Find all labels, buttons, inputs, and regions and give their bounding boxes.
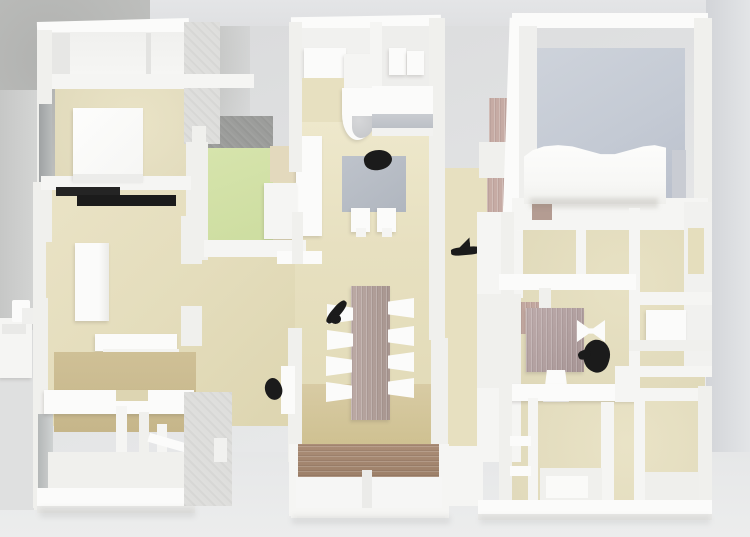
kitchen-band-gray xyxy=(372,114,433,128)
tr-top-wall xyxy=(512,13,708,28)
tl-upper-divider xyxy=(146,33,151,75)
wardrobe xyxy=(75,243,109,321)
mini-cabinet-shelf xyxy=(2,324,26,334)
grid-h-right-c xyxy=(629,366,712,377)
deck-divider xyxy=(362,470,372,512)
living-wall-stub-b xyxy=(181,306,202,346)
desk-chair-b-leg xyxy=(382,228,392,237)
grid-right-sliver xyxy=(688,228,704,274)
bl-slab-notch xyxy=(116,390,148,401)
green-top-beam xyxy=(184,74,254,88)
wavy-bed-shadow xyxy=(530,198,658,208)
grid-left-wall xyxy=(501,212,514,368)
kitchen-band xyxy=(372,86,433,114)
black-shelf-lower xyxy=(77,195,176,206)
br-shelf-a xyxy=(510,436,531,446)
dining-table xyxy=(351,286,390,420)
br-v2 xyxy=(601,402,614,508)
grid-h-right-a xyxy=(629,292,712,305)
kitchen-band-lip xyxy=(372,128,433,136)
tl-window xyxy=(39,104,52,182)
ct-vert-wall xyxy=(370,22,382,96)
bath-fixture-b xyxy=(407,51,424,75)
architectural-model-photo xyxy=(0,0,750,537)
desk-chair-a-leg xyxy=(356,228,366,237)
bed xyxy=(73,108,143,180)
kitchen-counter-a xyxy=(304,48,346,78)
living-wall-stub-a xyxy=(181,216,202,264)
br-room1-floor-notch xyxy=(546,476,588,498)
ct-left-wall xyxy=(289,22,302,172)
br-v1 xyxy=(528,398,538,506)
br-v3 xyxy=(634,392,645,510)
br-right-wall xyxy=(698,386,712,512)
tl-hor-wall xyxy=(41,74,188,89)
square-wood-table xyxy=(526,308,584,372)
bl-door-notch xyxy=(214,438,227,462)
floor-green-room xyxy=(204,148,273,244)
shadow-under-br xyxy=(480,516,710,524)
shadow-under-bl xyxy=(40,508,195,517)
shadow-under-deck xyxy=(292,516,450,524)
terrace-wall-stub xyxy=(281,366,295,414)
br-shelf-b xyxy=(510,466,531,476)
bed-foot-edge xyxy=(73,174,143,183)
ct-right-wall xyxy=(429,18,445,340)
bath-fixture-a xyxy=(389,48,406,75)
ct-left-wall-low xyxy=(292,212,303,264)
grid-h-right-b xyxy=(629,340,712,351)
ct-beige-strip xyxy=(302,78,344,122)
grid-shelf-box xyxy=(646,310,686,342)
corridor-end-wall xyxy=(443,446,483,506)
figure-at-dining-head xyxy=(330,314,341,324)
grid-h1 xyxy=(499,274,636,290)
